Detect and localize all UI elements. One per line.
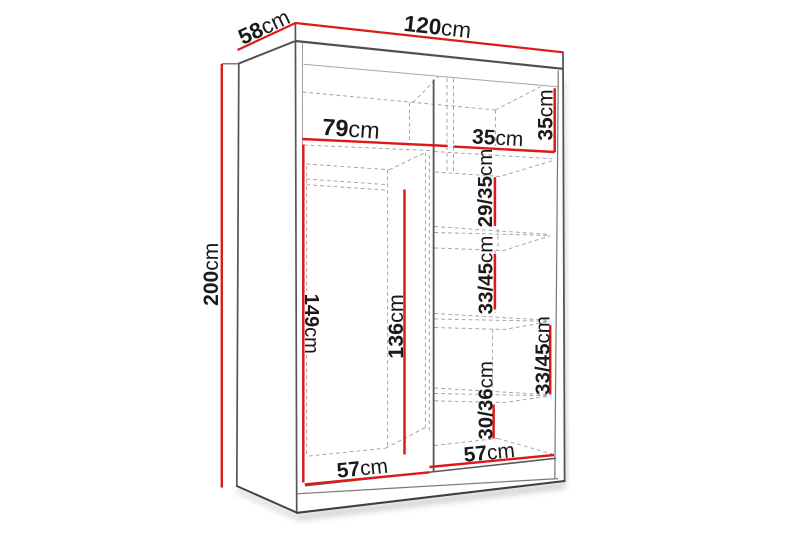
svg-text:30/36cm: 30/36cm [475, 361, 498, 440]
svg-text:200cm: 200cm [200, 243, 223, 306]
svg-text:33/45cm: 33/45cm [475, 236, 498, 315]
svg-text:35cm: 35cm [471, 125, 524, 151]
svg-text:149cm: 149cm [300, 294, 322, 354]
svg-text:79cm: 79cm [321, 114, 380, 144]
svg-text:35cm: 35cm [535, 89, 558, 140]
svg-text:33/45cm: 33/45cm [532, 316, 555, 395]
svg-text:57cm: 57cm [463, 439, 516, 467]
svg-text:29/35cm: 29/35cm [474, 149, 497, 228]
svg-text:136cm: 136cm [384, 294, 408, 359]
